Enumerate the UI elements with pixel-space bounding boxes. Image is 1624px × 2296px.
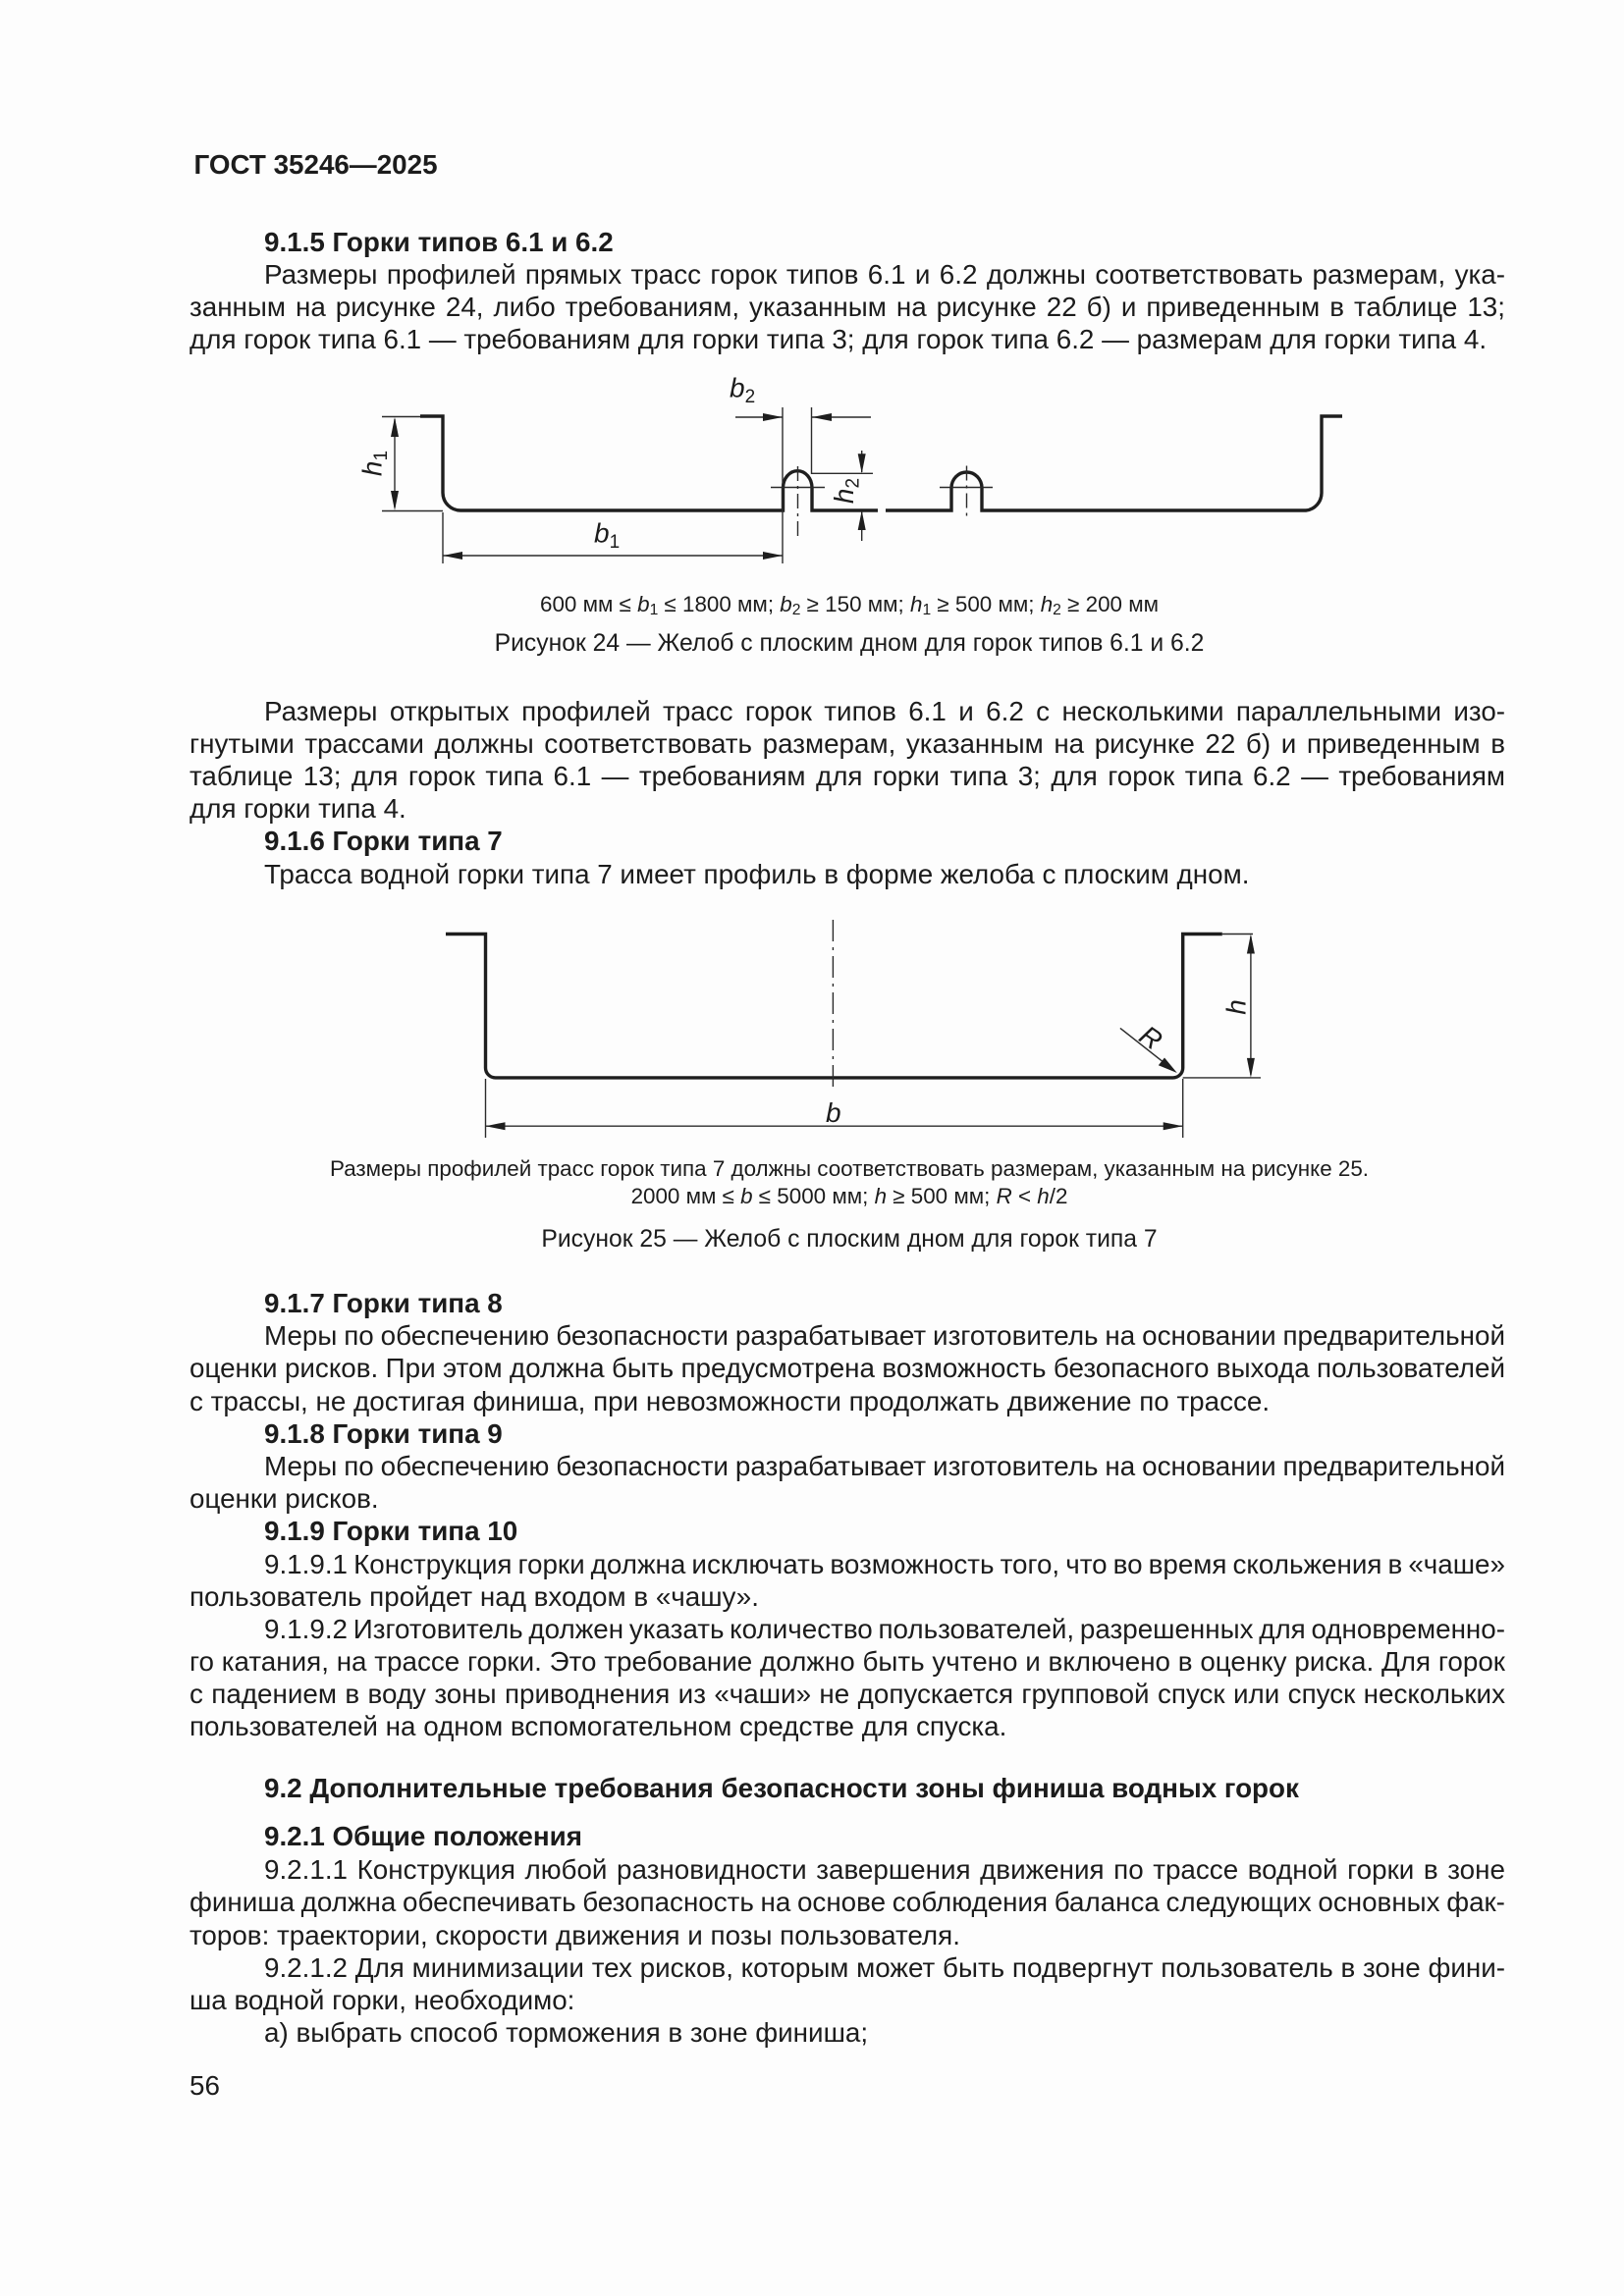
svg-text:b1: b1: [594, 517, 620, 553]
svg-text:h2: h2: [829, 478, 864, 504]
svg-text:b: b: [826, 1097, 841, 1128]
svg-text:h: h: [1221, 999, 1252, 1015]
svg-text:R: R: [1134, 1020, 1167, 1056]
svg-text:b2: b2: [730, 372, 755, 407]
svg-text:h1: h1: [356, 451, 392, 476]
